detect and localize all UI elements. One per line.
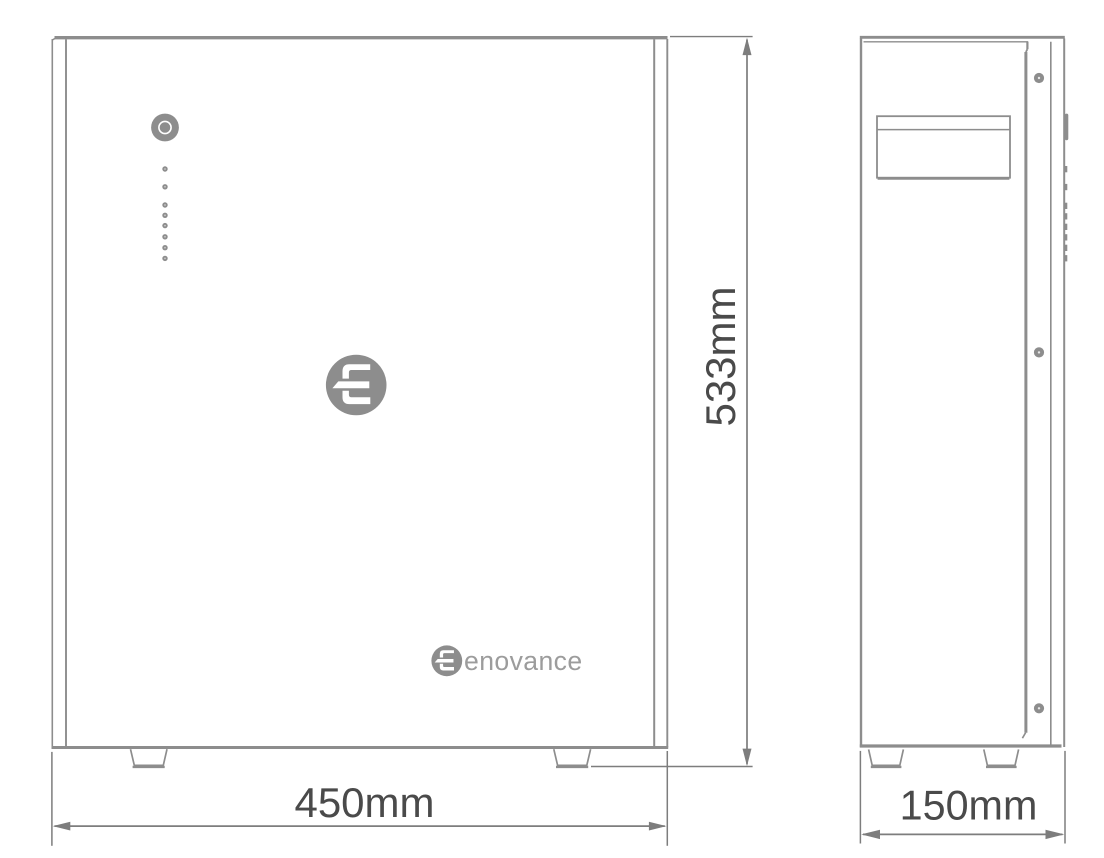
svg-text:150mm: 150mm (900, 783, 1038, 829)
svg-text:533mm: 533mm (697, 286, 744, 426)
svg-text:enovance: enovance (464, 646, 583, 676)
svg-text:450mm: 450mm (294, 779, 434, 826)
